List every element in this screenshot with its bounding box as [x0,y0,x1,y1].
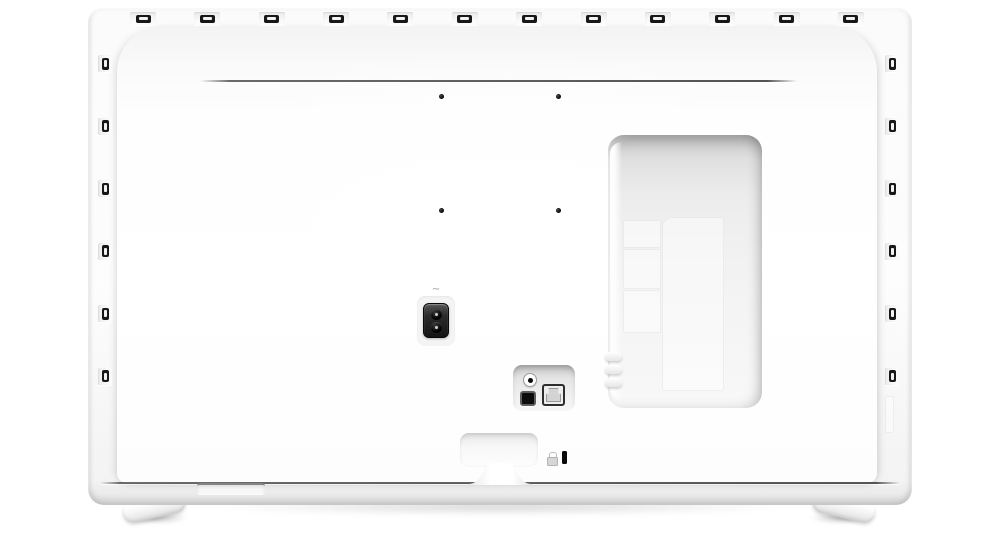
vent-slot [581,12,607,25]
tv-chassis-rear: ∼ [88,8,912,505]
vent-slot-opening [393,15,408,23]
vent-slot [838,12,864,25]
side-connector-edge [605,365,622,374]
vent-slot [885,180,899,197]
vent-slot-opening [586,15,601,23]
io-port-recess [513,365,575,411]
vent-slot [709,12,735,25]
power-pin [431,322,442,333]
vent-slot [323,12,349,25]
vent-slot-opening [889,308,896,320]
side-connector-edge [605,378,622,387]
bottom-edge-recess [197,483,265,495]
kensington-lock-slot [562,451,567,464]
top-panel-seam [200,80,797,82]
side-connector-edges [608,135,762,408]
ethernet-port [542,384,565,406]
vent-slot-opening [843,15,858,23]
vent-slot [452,12,478,25]
vent-slot [645,12,671,25]
vent-slot [774,12,800,25]
vent-slot-opening [889,120,896,132]
vesa-hole [556,208,561,213]
optical-audio-port [520,391,536,406]
vesa-hole [439,208,444,213]
vent-slot-opening [650,15,665,23]
vent-slot [259,12,285,25]
vent-slot-opening [102,308,109,320]
padlock-icon [547,452,556,464]
vent-slot-opening [136,15,151,23]
vent-slot [130,12,156,25]
vent-slot [885,368,899,385]
vent-slot-opening [715,15,730,23]
vent-slot [98,305,112,322]
vent-slot [194,12,220,25]
vent-slot [885,243,899,260]
vent-slot-opening [200,15,215,23]
vent-slot [516,12,542,25]
ac-power-icon: ∼ [421,284,451,296]
tv-rear-product-photo: ∼ [0,0,999,533]
vent-slot [885,305,899,322]
side-connector-edge [605,352,622,361]
vent-slot-opening [522,15,537,23]
power-pin [431,309,442,320]
vent-slot-opening [264,15,279,23]
vent-slot-opening [889,245,896,257]
vent-slot [885,55,899,72]
vent-slot-opening [102,58,109,70]
vent-slot [98,118,112,135]
vent-slot-opening [889,183,896,195]
vent-slot-opening [889,370,896,382]
right-edge-seam [885,396,894,433]
vent-slot [98,368,112,385]
stand-column [455,457,545,485]
left-vent-strip [98,55,112,385]
vent-slot [98,243,112,260]
vent-slot [885,118,899,135]
vent-slot [387,12,413,25]
vent-slot-opening [102,183,109,195]
vent-slot-opening [889,58,896,70]
vent-slot-opening [102,370,109,382]
vent-slot-opening [102,245,109,257]
vesa-mount-holes [439,94,561,213]
connection-bay-recess [608,135,762,408]
right-vent-strip [885,55,899,385]
vent-slot-opening [102,120,109,132]
vesa-hole [439,94,444,99]
vent-slot [98,55,112,72]
vent-slot-opening [779,15,794,23]
power-inlet-socket [423,303,449,338]
vent-slot [98,180,112,197]
top-vent-strip [130,12,864,26]
vesa-hole [556,94,561,99]
audio-jack [523,373,537,387]
vent-slot-opening [457,15,472,23]
vent-slot-opening [329,15,344,23]
